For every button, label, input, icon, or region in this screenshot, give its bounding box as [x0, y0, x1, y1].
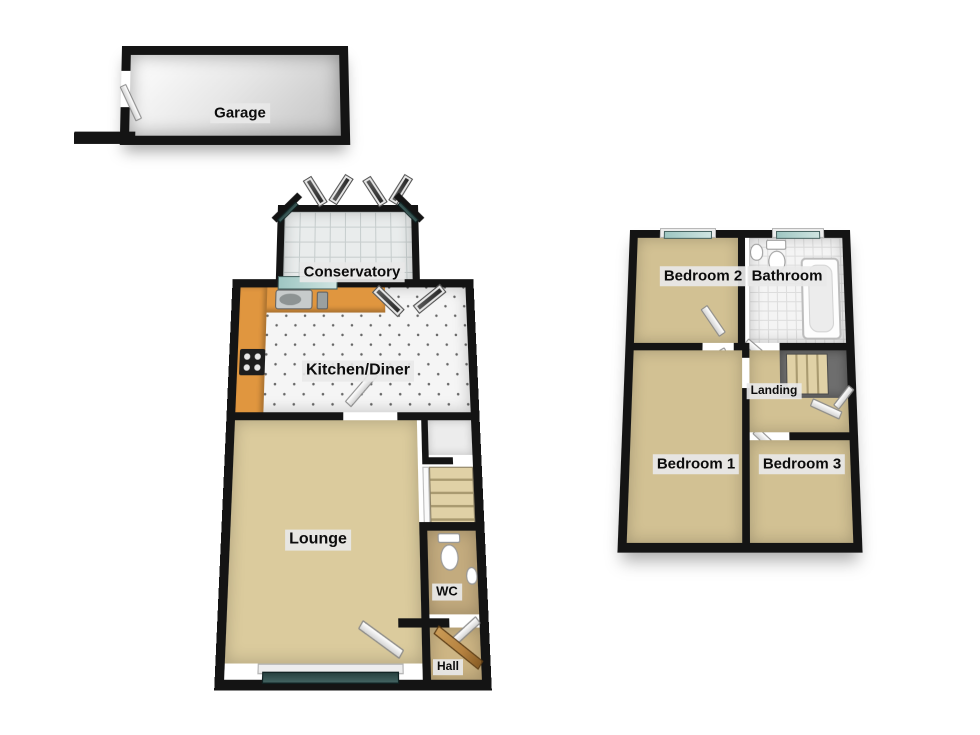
- bedroom-1-floor: [627, 350, 743, 543]
- french-door-leaf: [303, 176, 328, 207]
- french-door-leaf: [328, 174, 353, 205]
- garage-plan: [120, 46, 350, 145]
- bathroom-sink: [750, 244, 763, 261]
- cupboard-wall: [422, 457, 453, 464]
- kitchen-lounge-wall: [235, 412, 343, 420]
- hall-label: Hall: [433, 659, 463, 675]
- wc-hall-wall: [398, 618, 449, 627]
- kitchen-sink: [275, 290, 313, 310]
- bathroom-toilet-tank: [766, 240, 786, 250]
- wc-wall: [419, 522, 475, 531]
- garage-label: Garage: [210, 103, 270, 123]
- landing-label: Landing: [747, 383, 802, 399]
- garage-floor: [129, 55, 341, 136]
- wc-label: WC: [432, 584, 462, 601]
- house-body: [214, 279, 492, 691]
- bedroom-2-window: [664, 231, 712, 239]
- toilet-bowl: [440, 544, 459, 570]
- bedroom-3-label: Bedroom 3: [759, 454, 845, 474]
- conservatory-label: Conservatory: [300, 262, 405, 282]
- bed2-bed1-wall: [634, 343, 703, 350]
- bed1-landing-wall: [742, 343, 749, 358]
- hob: [239, 349, 265, 375]
- bedroom-2-label: Bedroom 2: [660, 266, 746, 286]
- staircase: [429, 467, 476, 527]
- lounge-window: [262, 672, 399, 684]
- bed2-bath-wall: [738, 238, 745, 343]
- sink-drainer: [317, 292, 329, 310]
- cupboard: [428, 420, 473, 455]
- wc-corner-sink: [466, 567, 478, 585]
- bathroom-label: Bathroom: [748, 266, 827, 286]
- bed3-landing-wall: [789, 432, 849, 440]
- bath-landing-wall: [780, 343, 847, 350]
- garage-step-wall: [74, 132, 135, 144]
- floorplan-canvas: Garage Conservatory Kitchen/Diner Lounge…: [0, 0, 980, 735]
- toilet-tank: [437, 533, 460, 543]
- french-door-leaf: [362, 176, 387, 207]
- kitchen-lounge-wall: [397, 412, 471, 420]
- lounge-label: Lounge: [285, 530, 351, 551]
- bathroom-window: [776, 231, 820, 239]
- kitchen-label: Kitchen/Diner: [302, 361, 414, 382]
- bedroom-1-label: Bedroom 1: [653, 454, 739, 474]
